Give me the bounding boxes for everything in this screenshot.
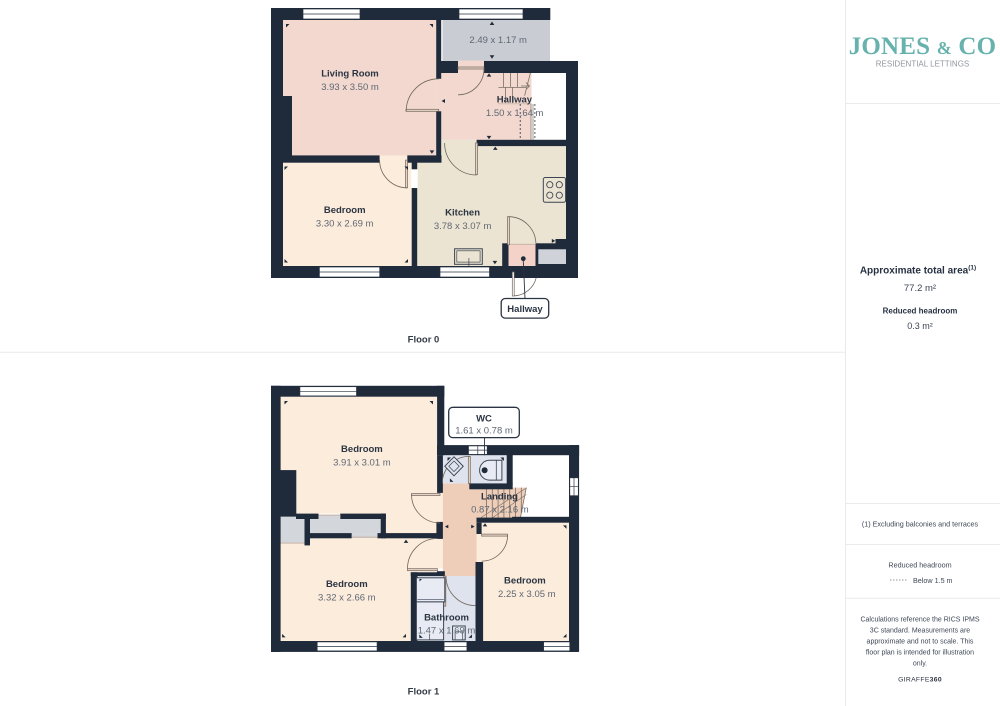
svg-text:Reduced headroom: Reduced headroom [883, 307, 958, 316]
svg-text:approximate and not to scale.: approximate and not to scale. This [867, 639, 974, 646]
svg-text:1.47 x 1.69 m: 1.47 x 1.69 m [418, 626, 476, 637]
svg-text:Calculations reference the RIC: Calculations reference the RICS IPMS [860, 617, 979, 624]
svg-text:Living Room: Living Room [321, 69, 379, 80]
svg-text:1.61 x 0.78 m: 1.61 x 0.78 m [455, 426, 513, 437]
svg-text:0.3 m²: 0.3 m² [907, 321, 933, 331]
svg-text:Reduced headroom: Reduced headroom [888, 561, 951, 570]
svg-text:2.49 x 1.17 m: 2.49 x 1.17 m [469, 35, 527, 46]
svg-text:3.93 x 3.50 m: 3.93 x 3.50 m [321, 82, 379, 93]
svg-text:(1) Excluding balconies and te: (1) Excluding balconies and terraces [862, 520, 979, 529]
svg-text:only.: only. [913, 661, 927, 668]
svg-text:3.91 x 3.01 m: 3.91 x 3.01 m [333, 457, 391, 468]
svg-text:1.50 x 1.64 m: 1.50 x 1.64 m [486, 108, 544, 119]
svg-text:3C standard. Measurements are: 3C standard. Measurements are [870, 628, 970, 635]
svg-text:floor plan is intended for ill: floor plan is intended for illustration [866, 650, 974, 657]
svg-text:Hallway: Hallway [497, 95, 533, 106]
svg-text:GIRAFFE360: GIRAFFE360 [898, 677, 942, 684]
svg-text:0.87 x 2.16 m: 0.87 x 2.16 m [471, 504, 529, 515]
svg-text:3.30 x 2.69 m: 3.30 x 2.69 m [316, 218, 374, 229]
svg-text:Approximate total area(1): Approximate total area(1) [860, 265, 976, 277]
svg-text:77.2 m²: 77.2 m² [904, 283, 936, 294]
svg-text:WC: WC [476, 414, 492, 425]
svg-text:Bedroom: Bedroom [326, 579, 368, 590]
svg-text:Floor 0: Floor 0 [408, 335, 440, 346]
svg-text:Kitchen: Kitchen [445, 208, 480, 219]
svg-text:Bedroom: Bedroom [341, 444, 383, 455]
svg-text:Bedroom: Bedroom [324, 205, 366, 216]
svg-text:JONES & CO: JONES & CO [849, 33, 997, 60]
svg-text:Bathroom: Bathroom [424, 613, 469, 624]
svg-text:2.25 x 3.05 m: 2.25 x 3.05 m [498, 589, 556, 600]
svg-text:3.32 x 2.66 m: 3.32 x 2.66 m [318, 592, 376, 603]
svg-text:3.78 x 3.07 m: 3.78 x 3.07 m [434, 221, 492, 232]
svg-text:Bedroom: Bedroom [504, 575, 546, 586]
svg-text:Below 1.5 m: Below 1.5 m [913, 576, 953, 585]
svg-text:Hallway: Hallway [507, 304, 543, 315]
svg-text:RESIDENTIAL LETTINGS: RESIDENTIAL LETTINGS [876, 60, 970, 69]
svg-text:Floor 1: Floor 1 [408, 687, 440, 698]
svg-text:Landing: Landing [481, 492, 518, 503]
